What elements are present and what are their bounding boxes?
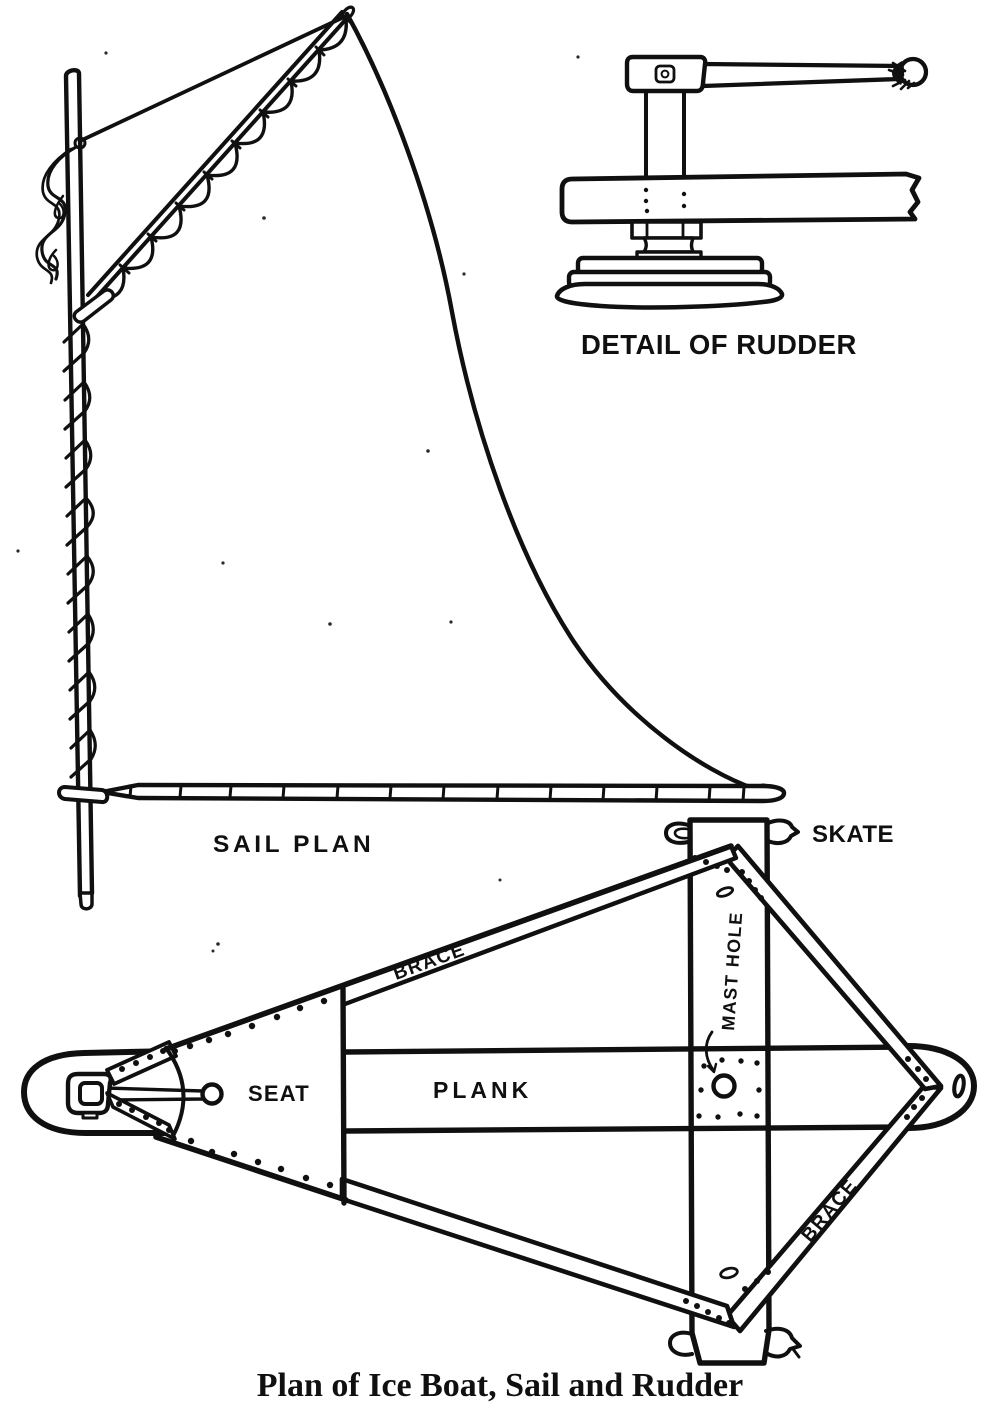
- svg-text:SAIL PLAN: SAIL PLAN: [213, 831, 374, 858]
- svg-text:SKATE: SKATE: [812, 821, 894, 848]
- svg-text:Plan of Ice Boat, Sail and Rud: Plan of Ice Boat, Sail and Rudder: [257, 1367, 743, 1404]
- svg-text:PLANK: PLANK: [433, 1077, 532, 1103]
- svg-text:BRACE: BRACE: [391, 939, 469, 984]
- svg-text:DETAIL OF RUDDER: DETAIL OF RUDDER: [581, 329, 857, 360]
- svg-text:BRACE: BRACE: [798, 1175, 862, 1246]
- svg-text:SEAT: SEAT: [248, 1081, 310, 1106]
